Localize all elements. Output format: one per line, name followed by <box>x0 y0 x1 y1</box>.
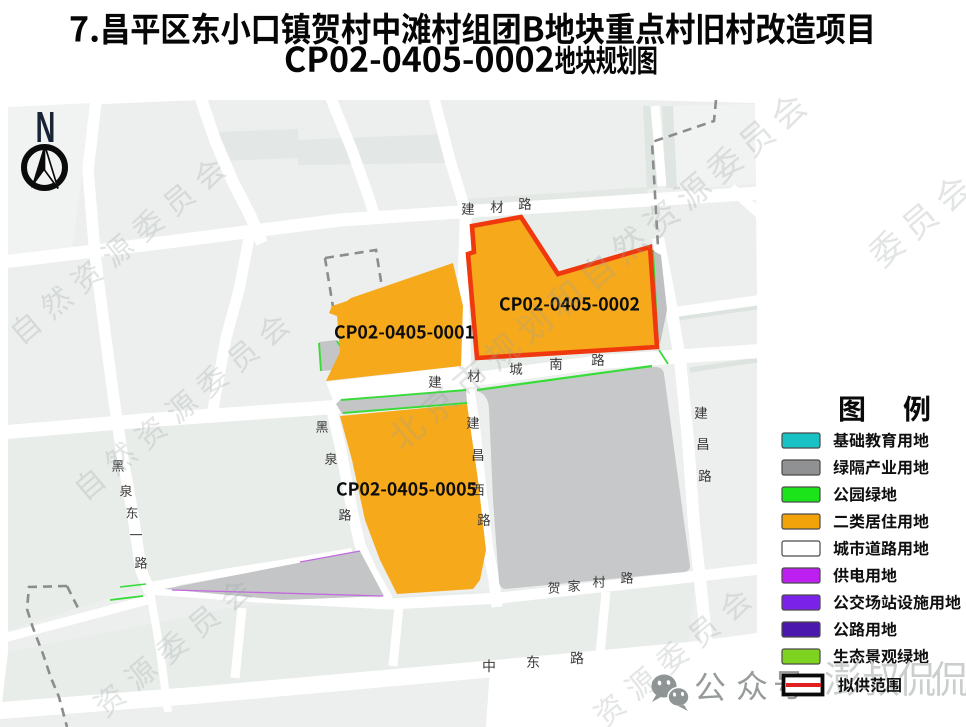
svg-text:N: N <box>36 102 56 151</box>
